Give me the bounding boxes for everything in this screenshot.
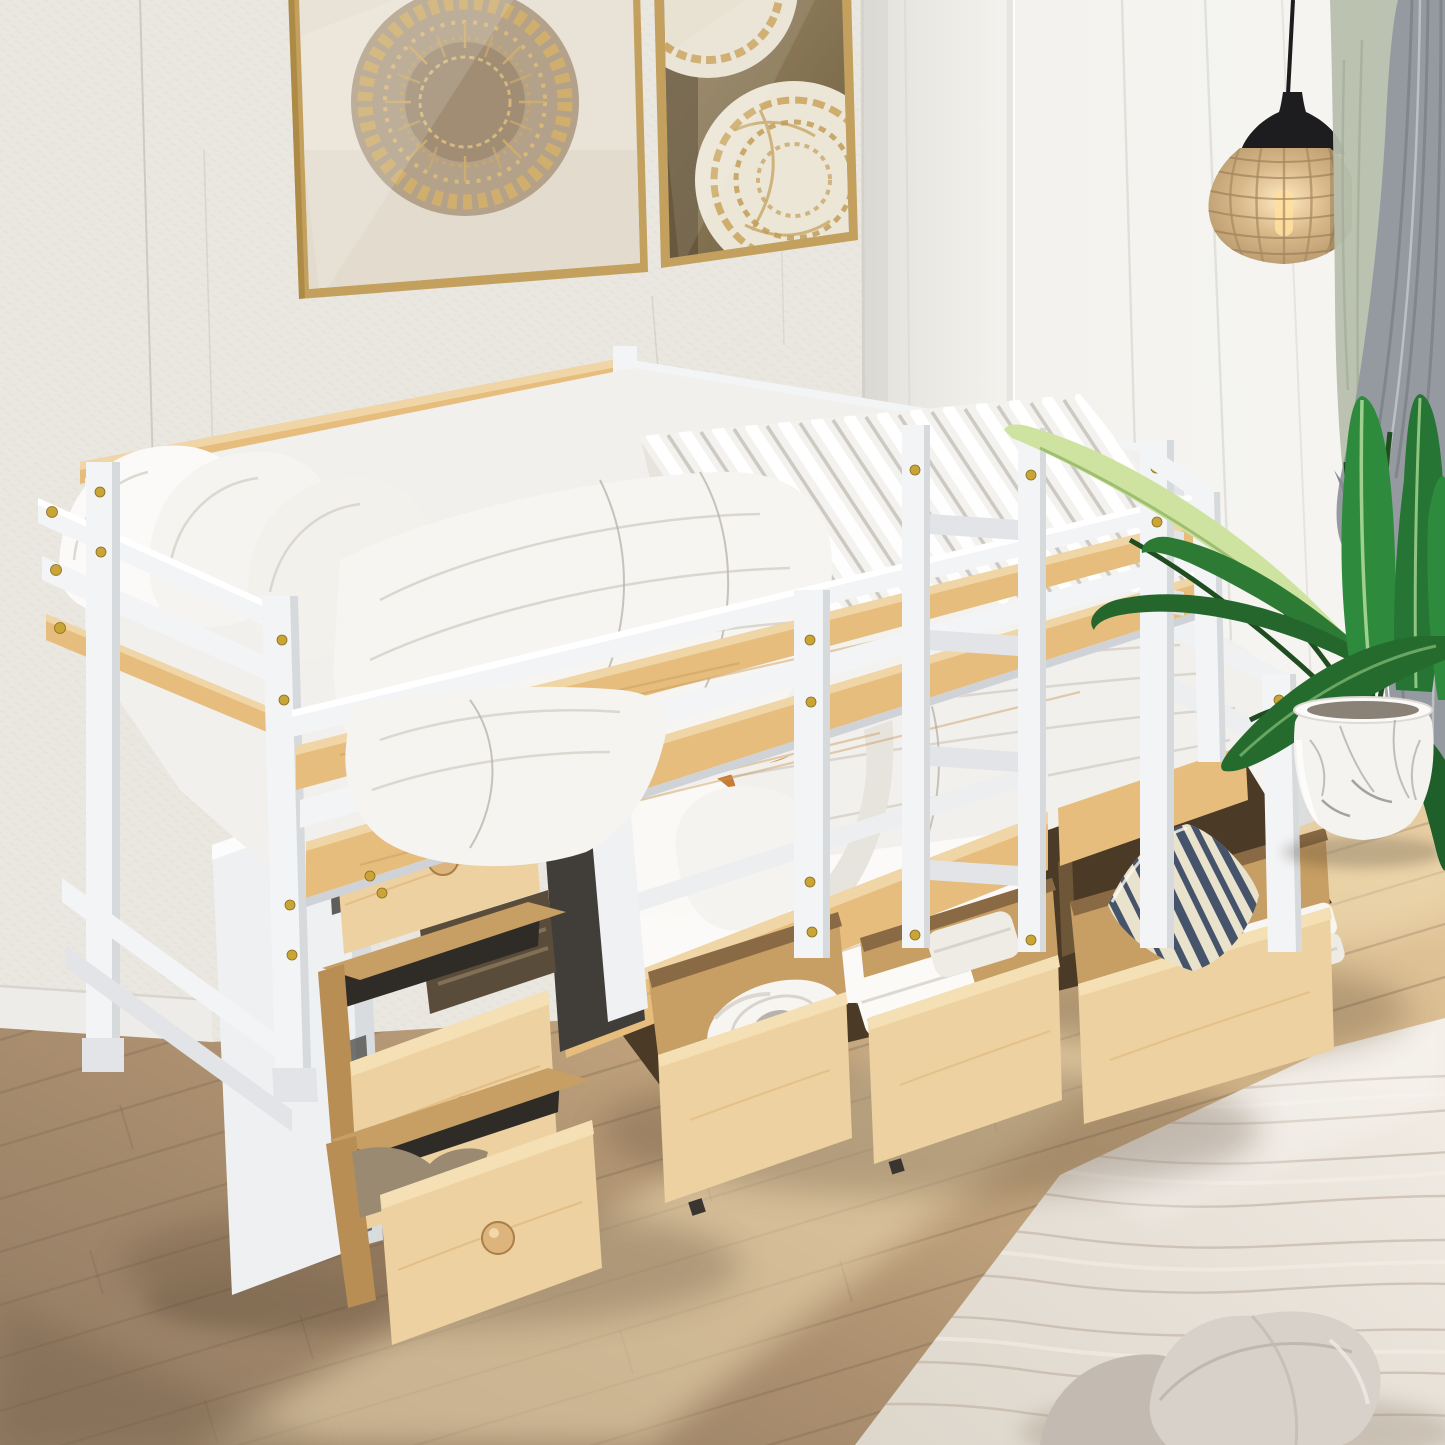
artwork-left [288, 0, 650, 310]
product-photo [0, 0, 1445, 1445]
front-mid-post [794, 590, 830, 958]
marble-pot [1294, 697, 1434, 840]
drawer-knob [482, 1222, 514, 1254]
bedroom-scene-illustration [0, 0, 1445, 1445]
